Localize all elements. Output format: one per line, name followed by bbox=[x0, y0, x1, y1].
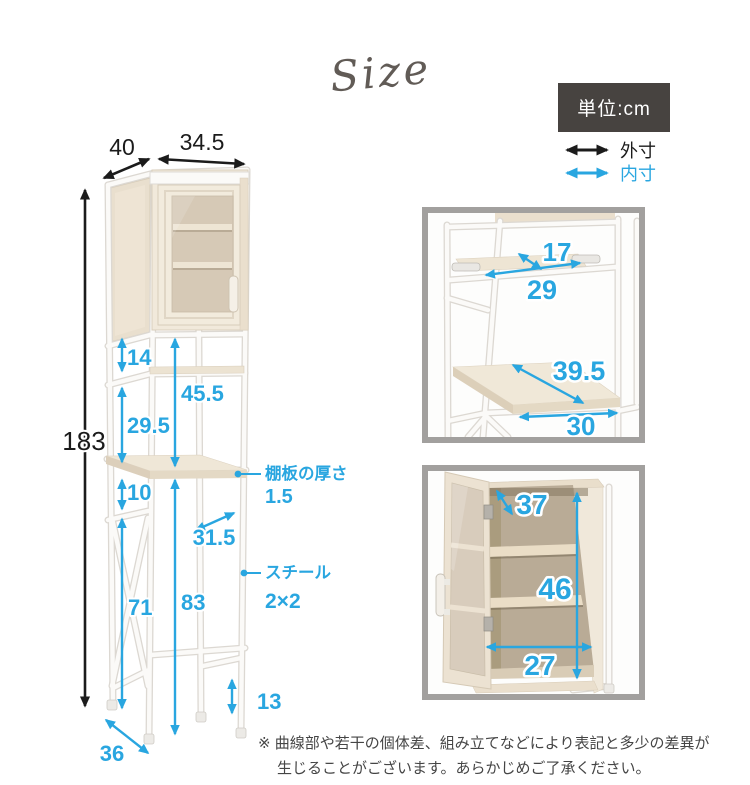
size-infographic: Size 単位:cm 外寸 内寸 bbox=[0, 0, 750, 785]
shelf-closeup-illustration: 17 29 39.5 30 bbox=[428, 213, 639, 437]
shelf-closeup-panel: 17 29 39.5 30 bbox=[422, 207, 645, 443]
legend-outer-row: 外寸 bbox=[561, 138, 656, 161]
label-width: 34.5 bbox=[180, 129, 225, 155]
shelf-thickness-label: 棚板の厚さ bbox=[265, 463, 348, 483]
legend-inner-row: 内寸 bbox=[561, 161, 656, 184]
unit-label: 単位:cm bbox=[577, 94, 651, 121]
steel-label: スチール bbox=[265, 564, 332, 582]
mid-shelf bbox=[106, 455, 247, 479]
cabinet-closeup-panel: 37 46 27 bbox=[422, 465, 645, 700]
cabinet-handle bbox=[229, 276, 238, 312]
dim-arrow-width bbox=[159, 159, 244, 164]
hinge-bottom bbox=[484, 617, 493, 631]
hinge-top bbox=[484, 505, 493, 519]
label-13: 13 bbox=[257, 689, 281, 714]
main-rack-diagram: 40 34.5 183 14 45.5 29.5 10 31.5 71 83 1… bbox=[55, 128, 395, 778]
inner-dim-arrow-icon bbox=[561, 165, 613, 181]
door-handle bbox=[436, 574, 445, 616]
size-title: Size bbox=[328, 44, 433, 102]
label-39-5: 39.5 bbox=[553, 356, 606, 386]
rack-illustration bbox=[106, 170, 261, 744]
label-10: 10 bbox=[127, 480, 151, 505]
label-46: 46 bbox=[538, 573, 571, 606]
label-30: 30 bbox=[567, 411, 596, 437]
steel-value: 2×2 bbox=[265, 590, 301, 613]
label-29-5: 29.5 bbox=[127, 413, 170, 438]
legend: 外寸 内寸 bbox=[561, 138, 656, 184]
outer-dim-arrow-icon bbox=[561, 142, 613, 158]
note-line-2: 生じることがございます。あらかじめご了承ください。 bbox=[277, 756, 709, 781]
label-depth: 40 bbox=[109, 134, 135, 160]
label-45-5: 45.5 bbox=[181, 381, 224, 406]
top-cabinet bbox=[150, 170, 249, 330]
legend-inner-label: 内寸 bbox=[620, 160, 656, 186]
label-37: 37 bbox=[516, 489, 547, 520]
label-36: 36 bbox=[100, 741, 124, 766]
label-height: 183 bbox=[62, 426, 105, 456]
shelf-thickness-value: 1.5 bbox=[265, 486, 293, 508]
label-31-5: 31.5 bbox=[193, 525, 236, 550]
label-83: 83 bbox=[181, 590, 205, 615]
unit-box: 単位:cm bbox=[558, 83, 670, 132]
label-17: 17 bbox=[543, 237, 572, 267]
open-glass-door bbox=[436, 472, 493, 689]
label-14: 14 bbox=[127, 345, 152, 370]
label-71: 71 bbox=[128, 595, 152, 620]
cabinet-closeup-illustration: 37 46 27 bbox=[428, 471, 639, 694]
note-line-1: ※ 曲線部や若干の個体差、組み立てなどにより表記と多少の差異が bbox=[258, 731, 709, 756]
label-29: 29 bbox=[527, 275, 557, 305]
label-27: 27 bbox=[524, 650, 555, 681]
disclaimer-note: ※ 曲線部や若干の個体差、組み立てなどにより表記と多少の差異が 生じることがござ… bbox=[258, 731, 709, 781]
